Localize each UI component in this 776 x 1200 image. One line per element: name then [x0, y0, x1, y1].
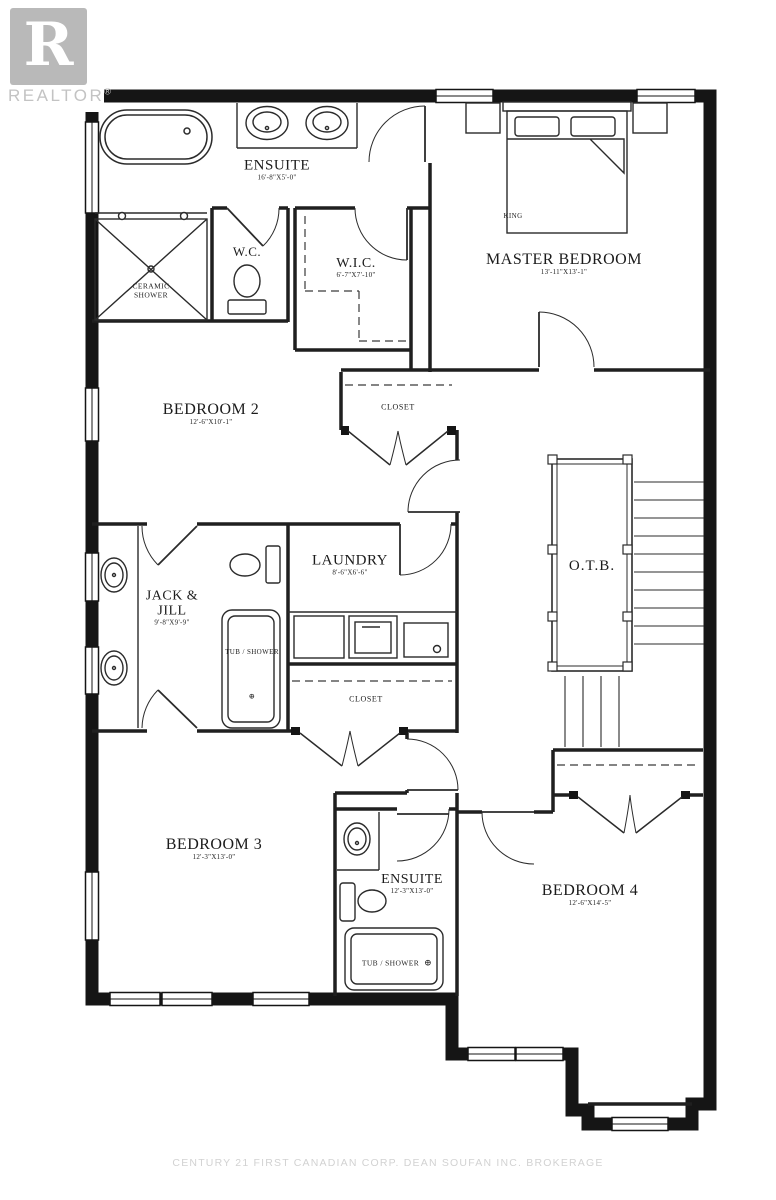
registered-mark: ® — [104, 86, 111, 96]
window-top-1 — [436, 90, 493, 103]
room-label-laundry: LAUNDRY8'-6"X6'-6" — [312, 553, 388, 578]
window-left-jj-1 — [86, 553, 99, 601]
window-left-ensuite — [86, 122, 99, 213]
laundry-appliances — [288, 612, 457, 658]
window-bay — [612, 1118, 668, 1131]
ceramic-shower — [95, 213, 207, 321]
window-left-bedroom3 — [86, 872, 99, 940]
laundry-sink — [404, 623, 448, 657]
toilet-tank — [266, 546, 280, 583]
window-left-jj-2 — [86, 647, 99, 694]
king-bed — [466, 102, 667, 233]
stairs — [565, 482, 704, 747]
room-label-wic: W.I.C.6'-7"X7'-10" — [336, 256, 375, 280]
vanity2 — [337, 812, 379, 870]
realtor-wordmark: REALTOR — [8, 86, 104, 105]
nightstand-left — [466, 103, 500, 133]
window-bottom-b3-2 — [162, 993, 212, 1006]
room-label-master-bedroom: MASTER BEDROOM13'-11"X13'-1" — [486, 251, 642, 277]
tub-shower-jj — [222, 610, 280, 728]
room-label-wc: W.C. — [233, 245, 261, 259]
tub-shower-text: TUB / SHOWER — [362, 959, 419, 968]
freestanding-tub — [100, 110, 212, 164]
window-left-bedroom2 — [86, 388, 99, 441]
brokerage-watermark: CENTURY 21 FIRST CANADIAN CORP. DEAN SOU… — [172, 1157, 603, 1169]
tub-shower-label-en2: TUB / SHOWER⊕ — [362, 958, 432, 969]
ceramic-shower-label-1: CERAMIC — [133, 282, 170, 291]
ceramic-shower-label-2: SHOWER — [134, 291, 168, 300]
room-label-bedroom-3: BEDROOM 312'-3"X13'-0" — [166, 836, 263, 862]
realtor-logo-box: R — [10, 8, 87, 85]
wc-toilet — [228, 265, 266, 314]
tub-shower-symbol-jj: ⊕ — [249, 692, 256, 701]
window-bottom-b3-3 — [253, 993, 309, 1006]
closet-rods — [292, 216, 699, 765]
double-vanity — [237, 103, 357, 148]
room-label-ensuite-master: ENSUITE16'-8"X5'-0" — [244, 158, 310, 183]
tub-shower-label-jj: TUB / SHOWER — [225, 648, 279, 656]
toilet2-tank — [340, 883, 355, 921]
realtor-logo-text: REALTOR® — [8, 86, 111, 106]
floor-plan-page: ENSUITE16'-8"X5'-0" W.C. W.I.C.6'-7"X7'-… — [0, 0, 776, 1200]
room-label-otb: O.T.B. — [569, 558, 615, 574]
window-top-2 — [637, 90, 695, 103]
realtor-logo: R REALTOR® — [0, 0, 104, 112]
nightstand-right — [633, 103, 667, 133]
room-label-bedroom-4: BEDROOM 412'-6"X14'-5" — [542, 882, 639, 908]
tub-shower-symbol-en2: ⊕ — [424, 958, 432, 969]
doors — [142, 106, 594, 864]
room-label-jack-and-jill: JACK & JILL 9'-8"X9'-9" — [146, 589, 198, 628]
room-label-closet-lower: CLOSET — [349, 696, 383, 705]
window-bottom-b3-1 — [110, 993, 160, 1006]
window-bottom-wing-2 — [516, 1048, 563, 1061]
room-label-bedroom-2: BEDROOM 212'-6"X10'-1" — [163, 401, 260, 427]
bifold-doors — [300, 431, 682, 833]
window-bottom-wing-1 — [468, 1048, 515, 1061]
room-label-closet-upper: CLOSET — [381, 404, 415, 413]
toilet-bowl — [230, 554, 260, 576]
floor-plan-drawing — [0, 0, 776, 1200]
king-bed-label: KING — [503, 212, 522, 220]
realtor-logo-letter: R — [24, 15, 74, 75]
washer — [294, 616, 344, 658]
room-label-ensuite-2: ENSUITE12'-3"X13'-0" — [381, 872, 443, 896]
